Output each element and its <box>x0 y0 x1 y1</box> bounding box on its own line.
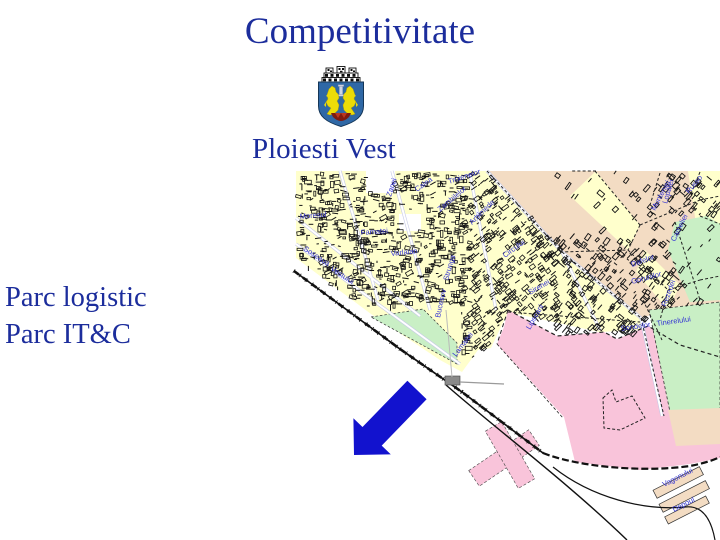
svg-text:Famatei: Famatei <box>361 226 389 237</box>
